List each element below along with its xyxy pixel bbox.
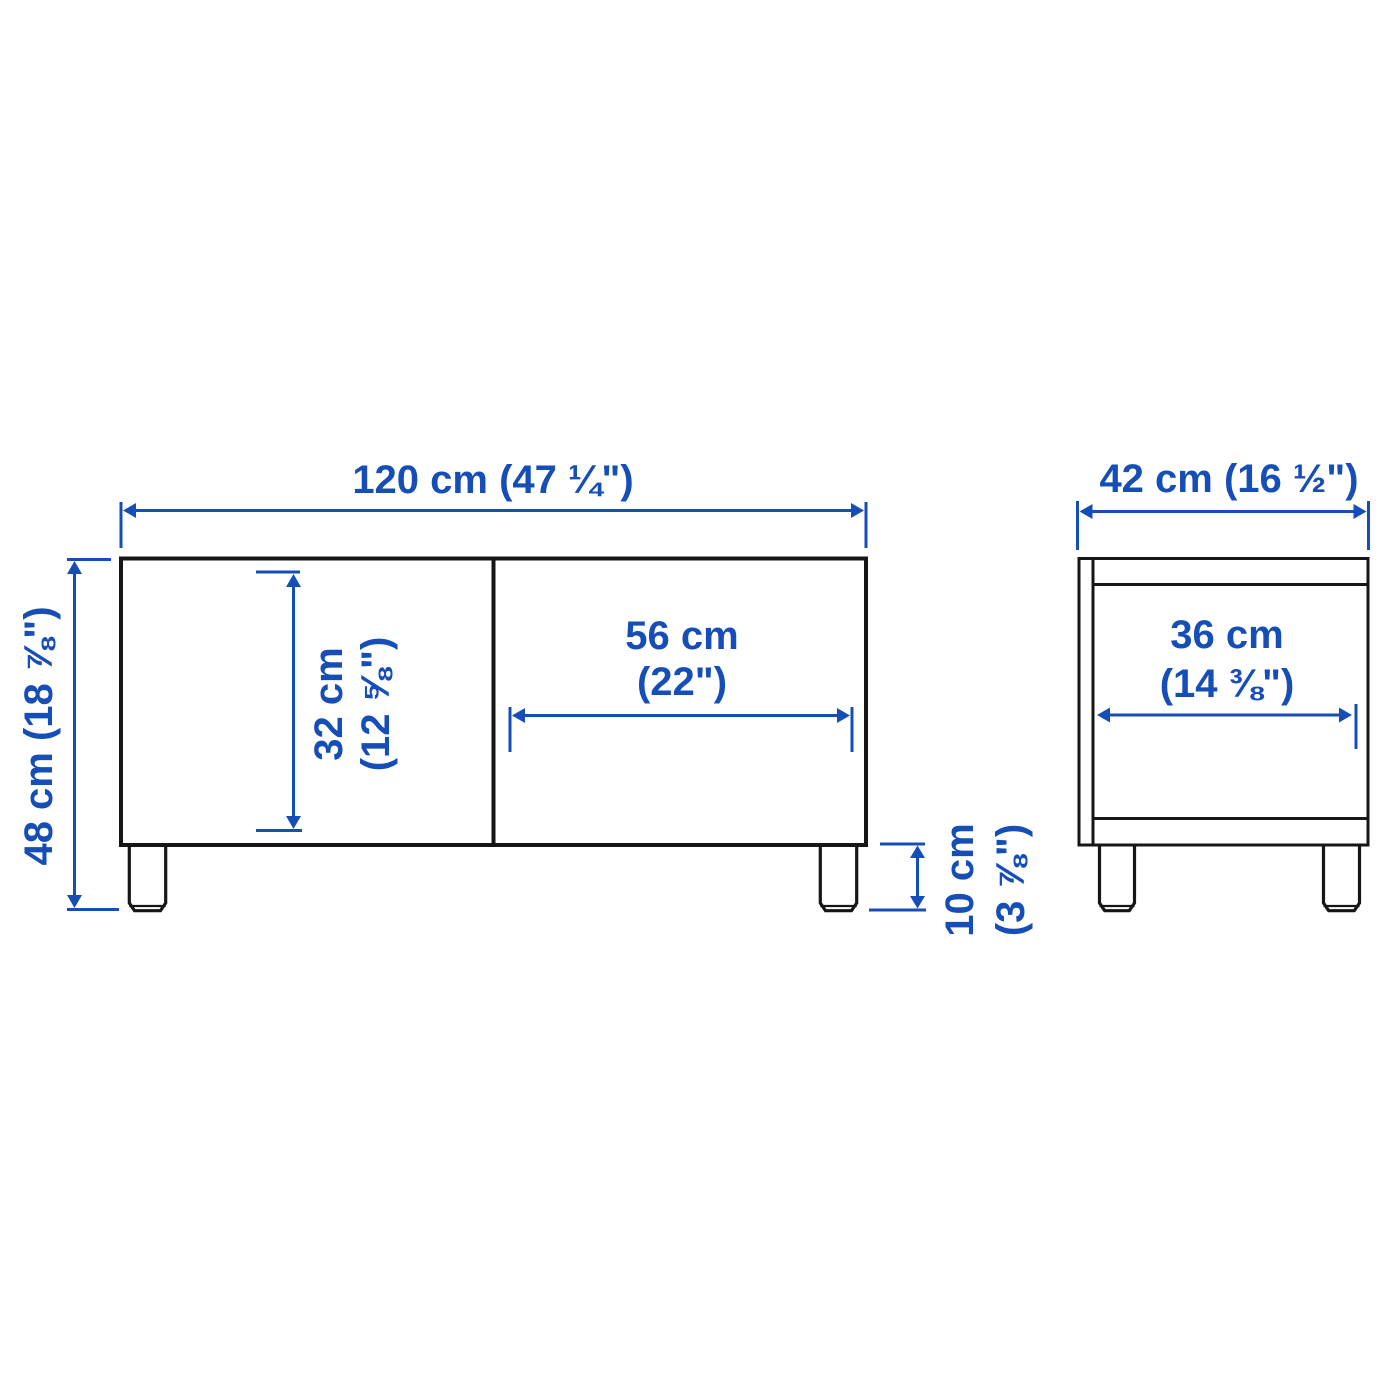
svg-text:(22"): (22") xyxy=(637,660,727,704)
svg-text:(12 ⅝"): (12 ⅝") xyxy=(354,637,398,772)
svg-text:42 cm (16 ½"): 42 cm (16 ½") xyxy=(1099,457,1358,501)
svg-text:10 cm: 10 cm xyxy=(938,823,982,936)
svg-text:120 cm (47 ¼"): 120 cm (47 ¼") xyxy=(352,458,633,502)
svg-text:32 cm: 32 cm xyxy=(307,647,351,760)
svg-text:36 cm: 36 cm xyxy=(1170,613,1283,657)
svg-text:(3 ⅞"): (3 ⅞") xyxy=(989,824,1033,936)
svg-text:56 cm: 56 cm xyxy=(625,614,738,658)
svg-text:48 cm (18 ⅞"): 48 cm (18 ⅞") xyxy=(17,606,61,865)
svg-text:(14 ⅜"): (14 ⅜") xyxy=(1160,662,1295,706)
